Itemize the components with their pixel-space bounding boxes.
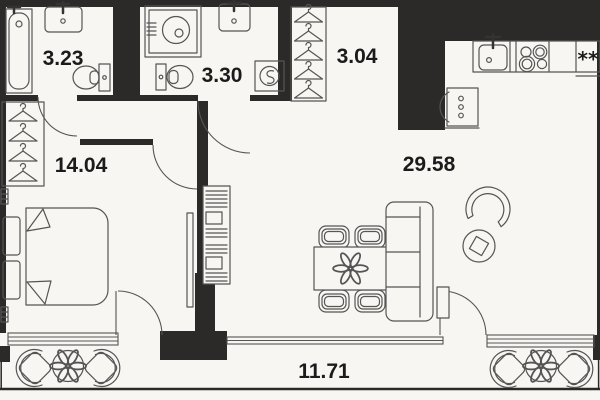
wall-segment xyxy=(80,139,153,145)
room-label-living-kitchen: 29.58 xyxy=(403,153,456,176)
side-table-icon xyxy=(437,287,449,318)
floor-plan: 3.23 3.30 3.04 14.04 29.58 11.71 ** xyxy=(0,0,600,400)
wall-shaft xyxy=(398,0,445,130)
dining-table-icon xyxy=(314,247,387,290)
shelving-unit xyxy=(203,186,230,284)
tv-icon xyxy=(187,213,193,307)
wall-segment xyxy=(77,95,113,101)
wall-segment xyxy=(0,95,38,101)
room-label-wardrobe: 3.04 xyxy=(337,45,378,68)
room-label-terrace: 11.71 xyxy=(298,360,350,383)
sofa-icon xyxy=(386,202,433,321)
floor-plan-canvas: 3.23 3.30 3.04 14.04 29.58 11.71 ** xyxy=(0,0,600,400)
wall-segment xyxy=(113,0,140,101)
wall-segment xyxy=(278,0,292,101)
wall-pier xyxy=(0,346,10,362)
fridge-icon: ** xyxy=(578,47,599,71)
wall-segment xyxy=(443,0,600,41)
room-label-bathroom: 3.23 xyxy=(43,47,84,70)
wall-pier xyxy=(160,331,227,360)
room-label-shower-room: 3.30 xyxy=(202,64,243,87)
terrace-table-icon xyxy=(53,351,84,382)
room-label-bedroom: 14.04 xyxy=(55,154,108,177)
terrace-table-icon xyxy=(526,351,557,382)
wall-segment xyxy=(250,95,278,101)
coffee-table-icon xyxy=(463,230,495,262)
wall-segment xyxy=(140,95,198,101)
